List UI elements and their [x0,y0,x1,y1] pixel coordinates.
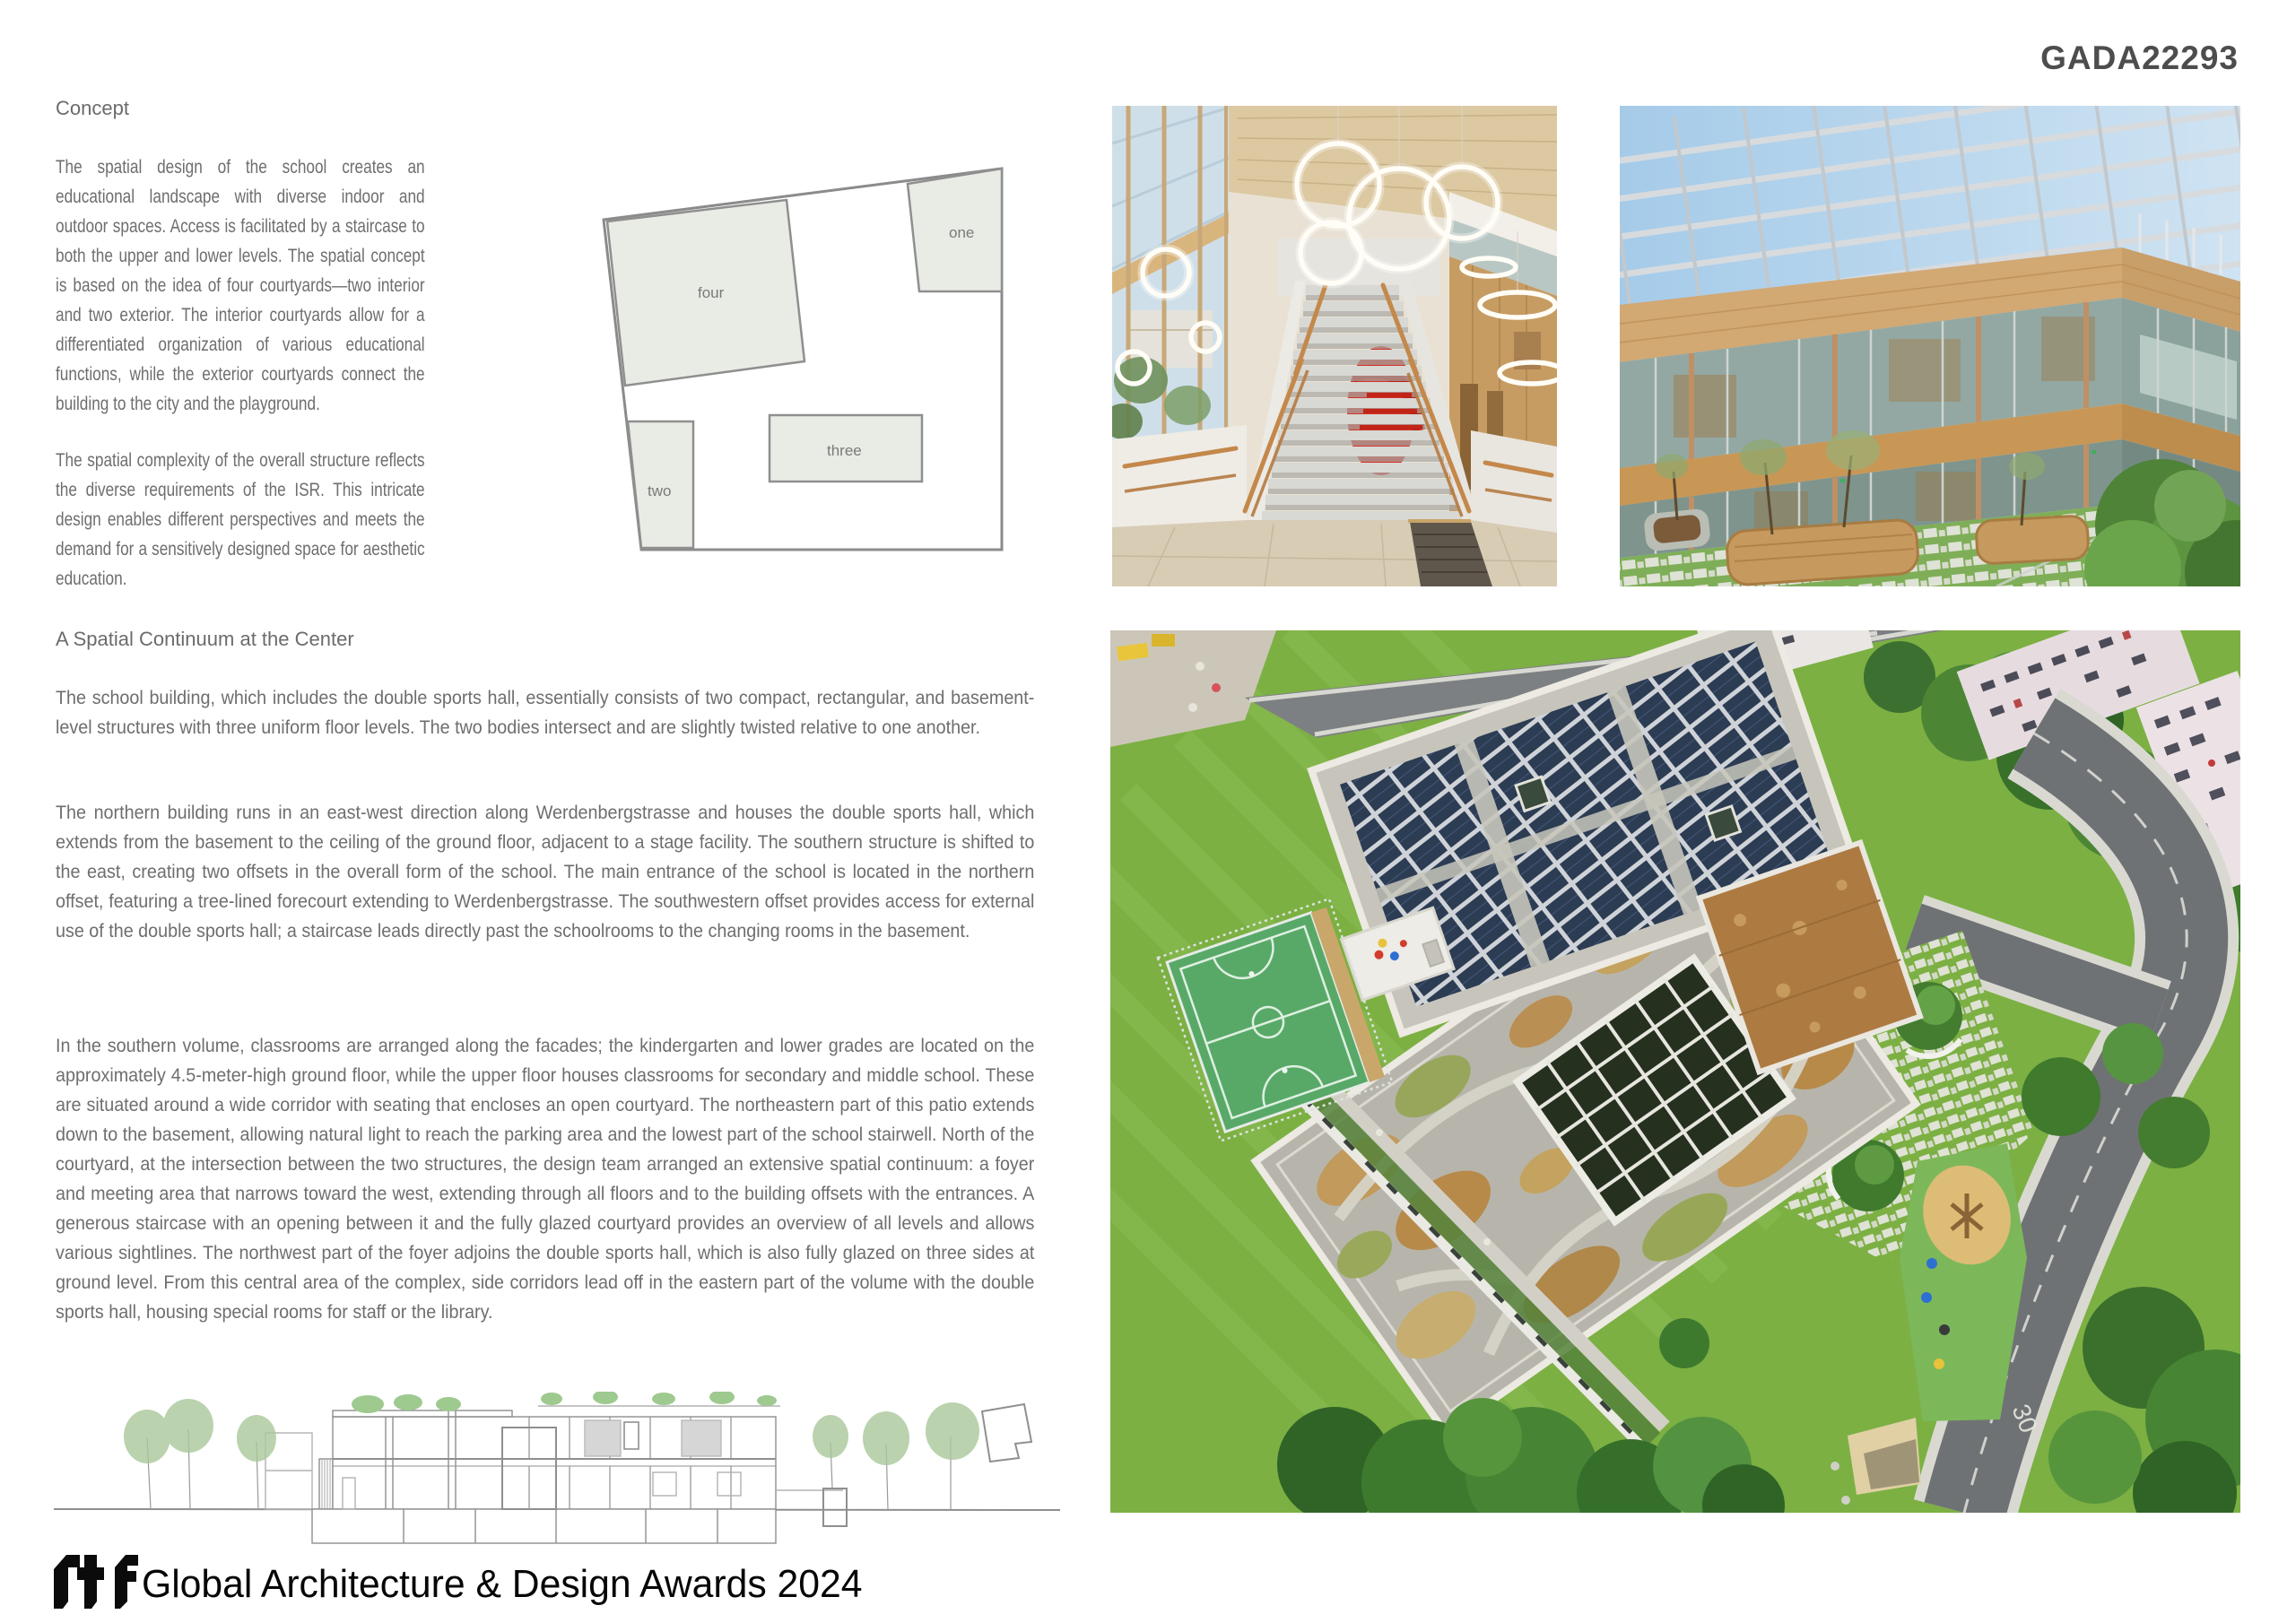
paragraph-continuum-2: The northern building runs in an east-we… [56,798,1034,946]
photo-staircase-interior [1112,106,1557,586]
tile-floor [1112,520,1557,586]
paragraph-continuum-1: The school building, which includes the … [56,683,1034,742]
award-presentation-board: GADA22293 Concept The spatial design of … [0,0,2296,1623]
heading-spatial-continuum: A Spatial Continuum at the Center [56,628,354,651]
photo-aerial-view: 30 [1110,630,2240,1513]
courtyard-label-two: two [648,482,671,499]
paragraph-concept-2: The spatial complexity of the overall st… [56,446,425,594]
courtyard-label-four: four [698,284,725,301]
submission-code: GADA22293 [2040,39,2239,77]
courtyard-diagram: four one three two [592,161,1009,556]
courtyard-label-one: one [949,224,974,241]
heading-concept: Concept [56,97,129,120]
glazed-curtain-wall [1112,106,1229,447]
paragraph-concept-1: The spatial design of the school creates… [56,152,425,419]
section-drawing [54,1392,1060,1551]
award-title: Global Architecture & Design Awards 2024 [142,1562,862,1607]
photo-courtyard-glass-roof [1620,106,2240,586]
rtf-logo [50,1549,140,1610]
paragraph-continuum-3: In the southern volume, classrooms are a… [56,1031,1034,1327]
courtyard-label-three: three [827,442,862,459]
